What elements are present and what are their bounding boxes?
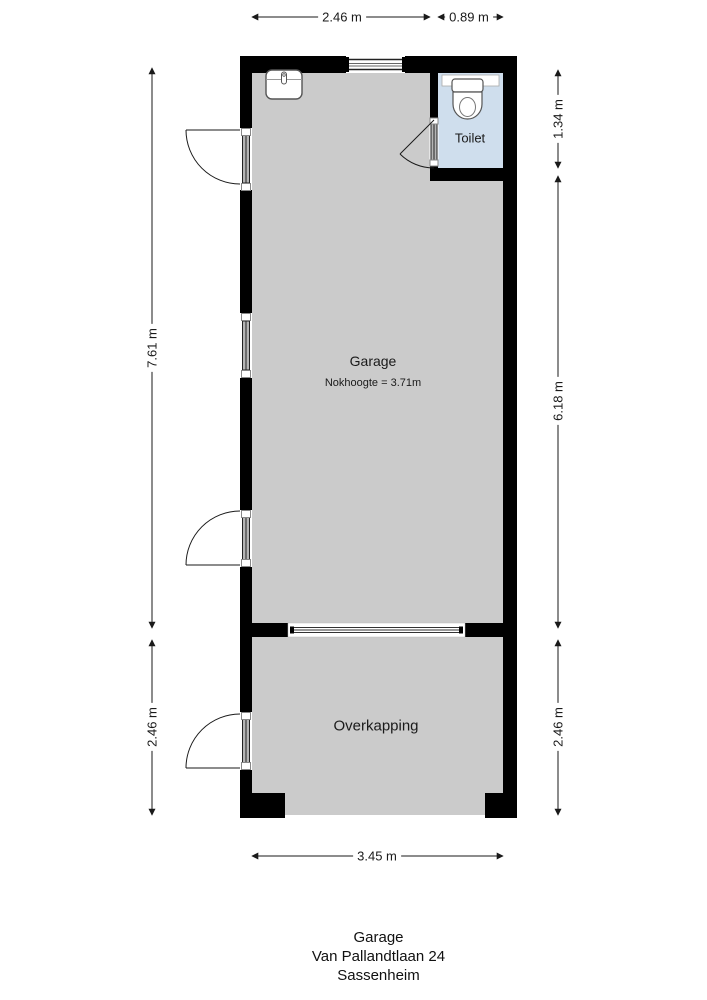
dim-label-top-garage: 2.46 m — [318, 10, 366, 25]
dim-label-right-garage: 6.18 m — [551, 377, 566, 425]
window-divider-wall — [288, 623, 465, 637]
title-line-building: Garage — [238, 928, 519, 947]
sink — [266, 70, 302, 99]
wall-divider-left — [240, 623, 288, 637]
dim-label-left-garage: 7.61 m — [145, 324, 160, 372]
door-overkapping — [186, 712, 252, 770]
wall-left-3 — [240, 378, 252, 510]
title-line-street: Van Pallandtlaan 24 — [238, 947, 519, 966]
toilet-room-label: Toilet — [455, 131, 485, 146]
dim-label-left-overkapping: 2.46 m — [145, 703, 160, 751]
wall-left-2 — [240, 190, 252, 313]
wall-divider-right — [465, 623, 517, 637]
door-garage-lower — [186, 510, 252, 567]
wall-left-foot — [240, 793, 285, 818]
wall-right — [503, 56, 517, 818]
wall-left-4 — [240, 567, 252, 712]
dim-label-top-toilet: 0.89 m — [445, 10, 493, 25]
dim-label-right-overkapping: 2.46 m — [551, 703, 566, 751]
garage-ridge-height-note: Nokhoogte = 3.71m — [325, 377, 421, 389]
dim-label-right-toilet: 1.34 m — [551, 95, 566, 143]
wall-right-foot — [485, 793, 517, 818]
wall-top-right — [405, 56, 517, 73]
garage-room-label: Garage — [350, 353, 397, 369]
wall-toilet-left — [430, 73, 438, 118]
dim-label-bottom: 3.45 m — [353, 849, 401, 864]
door-garage-upper — [186, 128, 252, 191]
window-top-wall — [346, 57, 405, 72]
title-block: Garage Van Pallandtlaan 24 Sassenheim — [238, 928, 519, 985]
window-left-wall — [241, 313, 252, 378]
floor-plan-page: 2.46 m 0.89 m 7.61 m 2.46 m 1.34 m 6.18 … — [0, 0, 707, 1000]
wall-left-1 — [240, 56, 252, 128]
floors — [252, 73, 503, 815]
wall-toilet-bottom — [430, 168, 503, 181]
title-line-city: Sassenheim — [238, 966, 519, 985]
overkapping-room-label: Overkapping — [333, 718, 418, 735]
